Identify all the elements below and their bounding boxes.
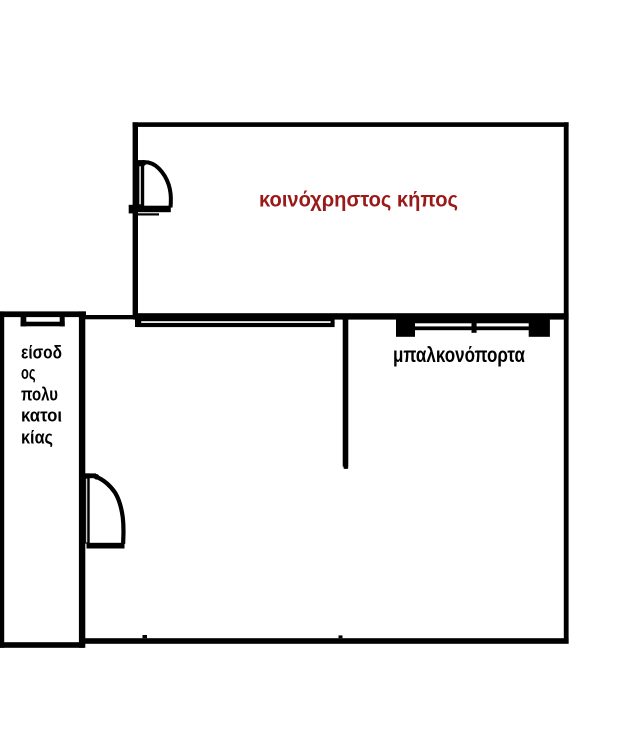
svg-text:κίας: κίας xyxy=(21,427,53,448)
svg-text:είσοδ: είσοδ xyxy=(21,342,62,363)
svg-text:κοινόχρηστος κήπος: κοινόχρηστος κήπος xyxy=(259,189,458,212)
svg-text:μπαλκονόπορτα: μπαλκονόπορτα xyxy=(393,343,525,367)
svg-text:κατοι: κατοι xyxy=(21,404,62,425)
svg-text:ος: ος xyxy=(21,362,36,383)
svg-text:πολυ: πολυ xyxy=(21,384,58,405)
